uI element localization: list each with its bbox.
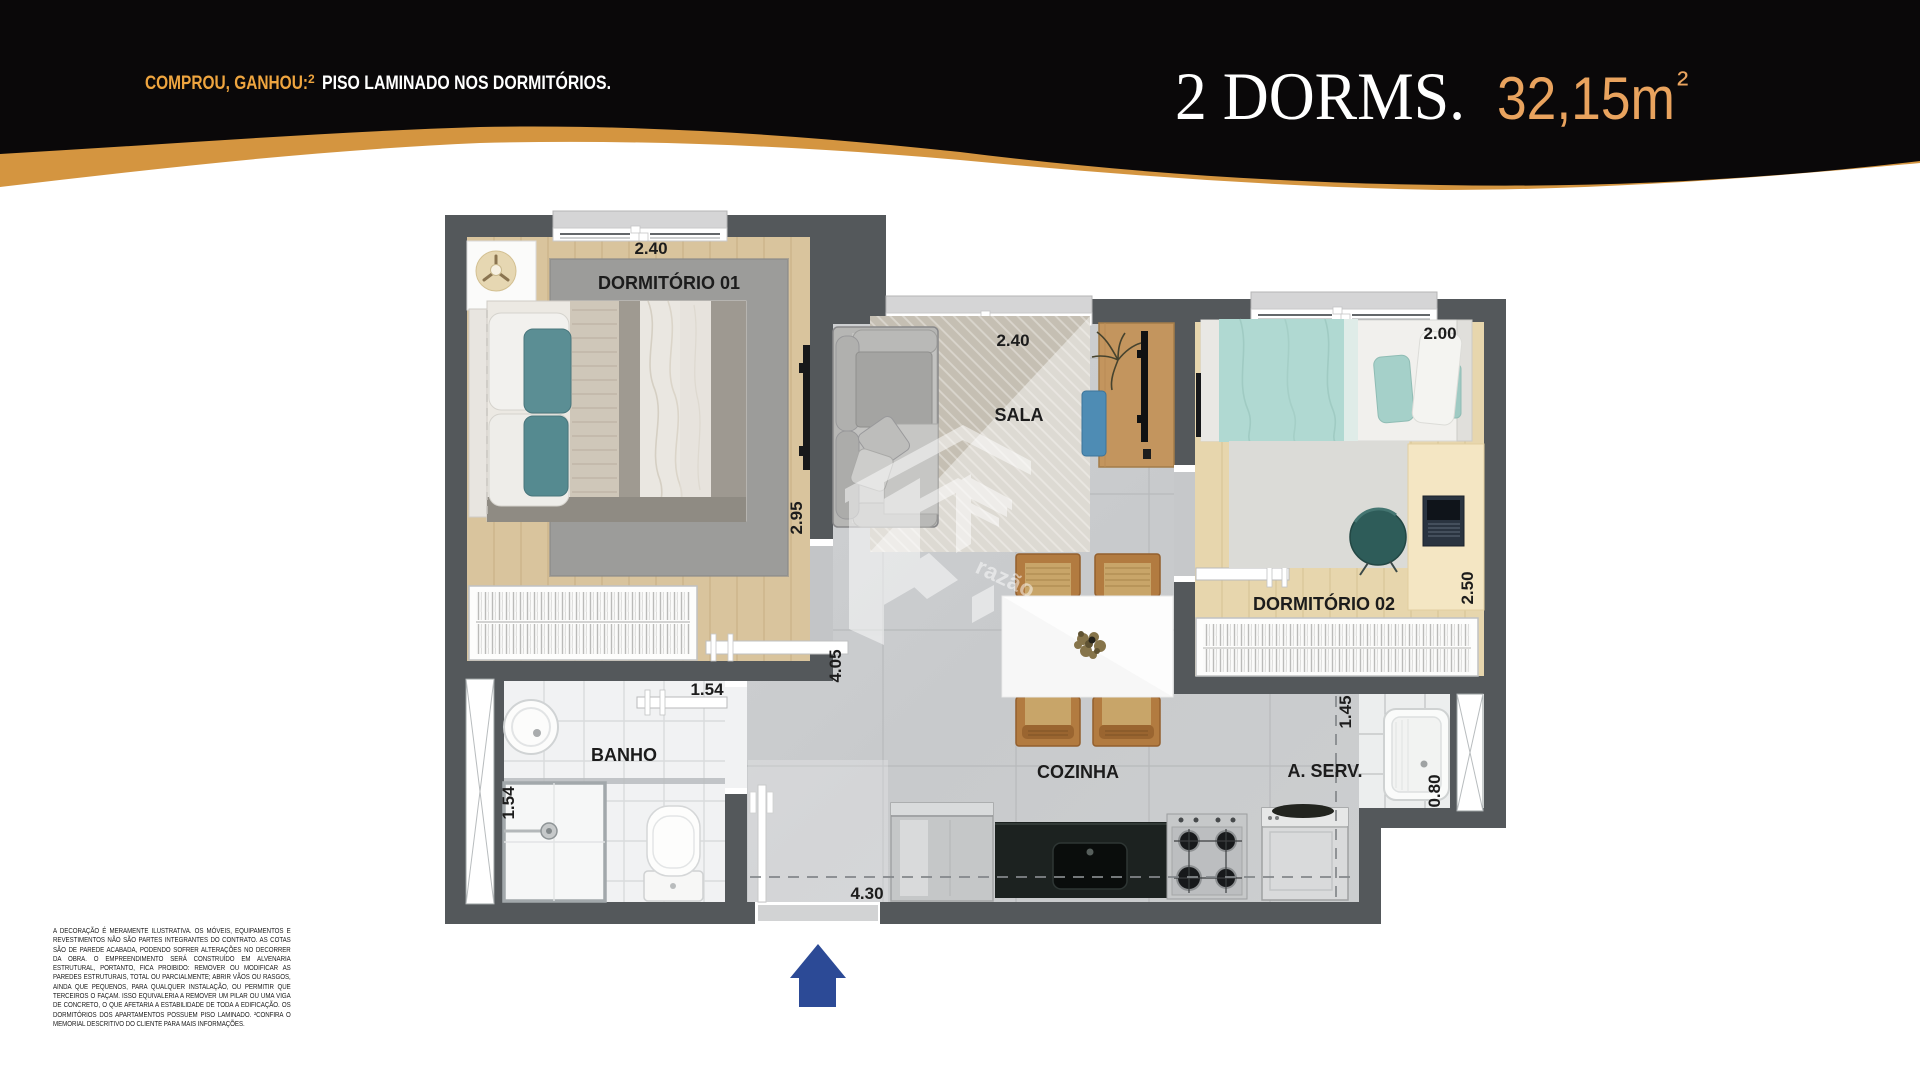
- svg-text:2: 2: [308, 72, 315, 86]
- svg-text:1.45: 1.45: [1336, 695, 1355, 728]
- svg-text:0.80: 0.80: [1425, 774, 1444, 807]
- svg-text:COZINHA: COZINHA: [1037, 762, 1119, 782]
- svg-text:2.50: 2.50: [1458, 571, 1477, 604]
- svg-text:PISO LAMINADO NOS DORMITÓRIOS.: PISO LAMINADO NOS DORMITÓRIOS.: [322, 72, 611, 94]
- svg-text:2.40: 2.40: [996, 331, 1029, 350]
- svg-text:²: ²: [1677, 65, 1688, 103]
- svg-text:2 DORMS.: 2 DORMS.: [1175, 58, 1465, 134]
- svg-text:2.40: 2.40: [634, 239, 667, 258]
- svg-text:1.54: 1.54: [499, 786, 518, 820]
- svg-text:A. SERV.: A. SERV.: [1287, 761, 1362, 781]
- svg-text:DORMITÓRIO 01: DORMITÓRIO 01: [598, 272, 740, 293]
- svg-text:SALA: SALA: [995, 405, 1044, 425]
- svg-text:4.30: 4.30: [850, 884, 883, 903]
- svg-text:4.05: 4.05: [826, 649, 845, 682]
- svg-text:32,15m: 32,15m: [1497, 65, 1675, 132]
- svg-text:DORMITÓRIO 02: DORMITÓRIO 02: [1253, 593, 1395, 614]
- svg-text:2.00: 2.00: [1423, 324, 1456, 343]
- svg-text:1.54: 1.54: [690, 680, 724, 699]
- svg-text:BANHO: BANHO: [591, 745, 657, 765]
- svg-text:COMPROU, GANHOU:: COMPROU, GANHOU:: [145, 73, 308, 94]
- svg-text:2.95: 2.95: [787, 501, 806, 534]
